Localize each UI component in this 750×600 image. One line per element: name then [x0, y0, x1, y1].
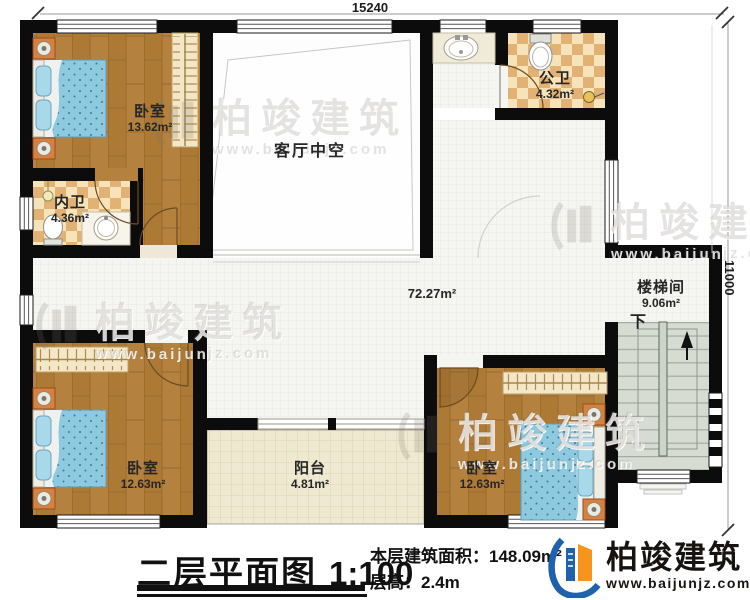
window-right-1 — [605, 160, 618, 243]
floor-height-row: 层高：2.4m — [370, 574, 562, 591]
window-stair-bottom — [637, 470, 690, 483]
building-stats: 本层建筑面积：148.09m² 层高：2.4m — [370, 548, 562, 591]
title-underline-2 — [137, 594, 367, 597]
pillow — [36, 100, 51, 130]
floor-area-row: 本层建筑面积：148.09m² — [370, 548, 562, 565]
pillow — [578, 466, 593, 496]
exterior-step — [640, 484, 686, 494]
living-void-outline — [207, 40, 420, 262]
window-left-2 — [20, 295, 33, 325]
shower-head — [584, 92, 595, 103]
company-logo-text: 柏竣建筑 www.baijunjz.com — [606, 541, 750, 591]
balcony-floor — [207, 430, 424, 524]
window-stair-side — [709, 393, 722, 467]
dimension-right: 11000 — [722, 260, 737, 350]
floorplan-page: 柏竣建筑www.baijunjz.com 柏竣建筑www.baijunjz.co… — [0, 0, 750, 600]
company-url: www.baijunjz.com — [606, 575, 750, 591]
title-underline — [137, 585, 365, 591]
window-bottom-1 — [57, 515, 160, 528]
company-logo: 柏竣建筑 www.baijunjz.com — [546, 534, 750, 598]
pillow — [36, 416, 51, 446]
dimension-top: 15240 — [330, 0, 410, 15]
pillow — [578, 432, 593, 462]
pillow — [36, 450, 51, 480]
headboard — [594, 427, 605, 503]
company-name: 柏竣建筑 — [606, 541, 750, 573]
window-top-3 — [440, 20, 486, 33]
title-block: 二层平面图1:100 本层建筑面积：148.09m² 层高：2.4m 柏竣建筑 … — [0, 540, 750, 600]
window-top-4 — [533, 20, 581, 33]
company-logo-icon — [546, 534, 602, 598]
stair-down-label: 下 — [630, 308, 646, 332]
pendant-light — [43, 191, 53, 201]
window-top-1 — [57, 20, 157, 33]
balcony-window — [258, 418, 424, 430]
window-left-1 — [20, 197, 33, 230]
window-top-2 — [237, 20, 392, 33]
pillow — [36, 66, 51, 96]
hallway-floor — [33, 258, 605, 330]
floorplan-drawing — [0, 0, 750, 540]
toilet — [44, 215, 63, 239]
